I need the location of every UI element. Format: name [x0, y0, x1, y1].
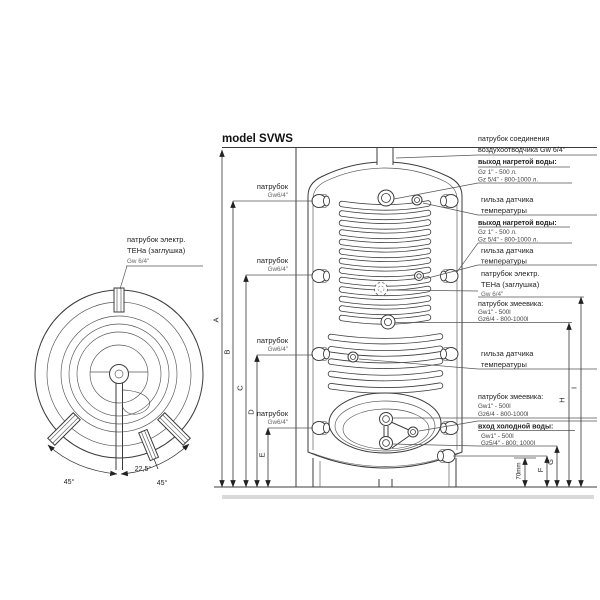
- dim-letter-B: B: [223, 349, 232, 354]
- dim-letter-E: E: [258, 452, 267, 457]
- dim-letter-A: A: [212, 317, 221, 322]
- sensor-sleeve-1-line1: гильза датчика: [481, 195, 534, 204]
- air-vent-label-line2: воздухоотводчика Gw 6/4": [478, 145, 566, 154]
- top-view-stub-22-right: [139, 429, 159, 460]
- dim-letter-H: H: [558, 397, 567, 402]
- coil-lower-heading: патрубок змеевика:: [478, 392, 543, 401]
- electric-heater-line3: Gw 6/4": [481, 291, 503, 298]
- cold-water-size1: Gw1" - 500l: [481, 433, 514, 440]
- hot-water-top-size1: Gz 1" - 500 л.: [478, 169, 517, 176]
- left-port-3-label: патрубок: [257, 336, 289, 345]
- angle-left-label: 45°: [64, 478, 75, 486]
- hot-water-top-heading: выход нагретой воды:: [478, 158, 557, 166]
- hot-water-top-size2: Gz 5/4" - 800-1000 л.: [478, 177, 538, 184]
- angle-middle-label: 22,5°: [135, 465, 152, 473]
- left-port-1-label: патрубок: [257, 182, 289, 191]
- top-view-stub-45-right: [158, 413, 191, 446]
- left-port-1-size: Gw6/4": [268, 192, 288, 199]
- cold-water-size2: Gz5/4" - 800; 1000l: [481, 440, 535, 447]
- sensor-sleeve-1-line2: температуры: [481, 206, 527, 215]
- sensor-sleeve-2-line1: гильза датчика: [481, 246, 534, 255]
- sensor-sleeve-3-line1: гильза датчика: [481, 349, 534, 358]
- dim-letter-D: D: [247, 409, 256, 415]
- dim-label-70mm: 70mm: [516, 462, 523, 479]
- tank-top-view: [35, 288, 203, 474]
- heater-label-line1: патрубок электр.: [127, 235, 186, 244]
- left-port-2-label: патрубок: [257, 256, 289, 265]
- dim-letter-C: C: [236, 385, 245, 391]
- coil-upper-heading: патрубок змеевика:: [478, 299, 543, 308]
- top-view-top-stub: [114, 288, 124, 312]
- angle-right-label: 45°: [157, 479, 168, 487]
- dim-letter-F: F: [536, 467, 545, 472]
- drawing-canvas: model SVWS патрубок электр. ТЕНа (заглуш…: [0, 0, 600, 600]
- dim-letter-G: G: [546, 459, 555, 465]
- sensor-sleeve-3-line2: температуры: [481, 360, 527, 369]
- left-port-2-size: Gw6/4": [268, 266, 288, 273]
- coil-lower-size1: Gw1" - 500l: [478, 403, 511, 410]
- coil-upper-size1: Gw1" - 500l: [478, 309, 511, 316]
- heater-label-line2: ТЕНа (заглушка): [127, 246, 186, 255]
- sensor-sleeve-2-line2: температуры: [481, 257, 527, 266]
- angle-tick-22: [154, 459, 158, 469]
- top-view-stub-45-left: [48, 413, 81, 446]
- hub-circle: [110, 365, 129, 384]
- left-port-3-size: Gw6/4": [268, 346, 288, 353]
- cold-water-heading: вход холодной воды:: [478, 423, 553, 431]
- coil-lower-size2: Gz6/4 - 800-1000l: [478, 411, 528, 418]
- heater-flange-dashed-circle: [375, 283, 388, 296]
- page-title: model SVWS: [222, 133, 293, 145]
- dim-letter-I: I: [570, 387, 579, 389]
- heater-label-line3: Gw 6/4": [127, 258, 149, 265]
- hot-water-mid-heading: выход нагретой воды:: [478, 219, 557, 227]
- electric-heater-line1: патрубок электр.: [481, 269, 540, 278]
- tank-front-view: [308, 147, 462, 487]
- coil-upper-size2: Gz6/4 - 800-1000l: [478, 316, 528, 323]
- boiler-technical-diagram: model SVWS патрубок электр. ТЕНа (заглуш…: [0, 0, 600, 600]
- left-port-4-size: Gw6/4": [268, 419, 288, 426]
- hot-water-mid-size2: Gz 5/4" - 800-1000 л.: [478, 237, 538, 244]
- air-vent-stub: [377, 147, 393, 165]
- electric-heater-line2: ТЕНа (заглушка): [481, 280, 540, 289]
- left-port-4-label: патрубок: [257, 409, 289, 418]
- air-vent-label-line1: патрубок соединения: [478, 134, 550, 143]
- hot-water-mid-size1: Gz 1" - 500 л.: [478, 229, 517, 236]
